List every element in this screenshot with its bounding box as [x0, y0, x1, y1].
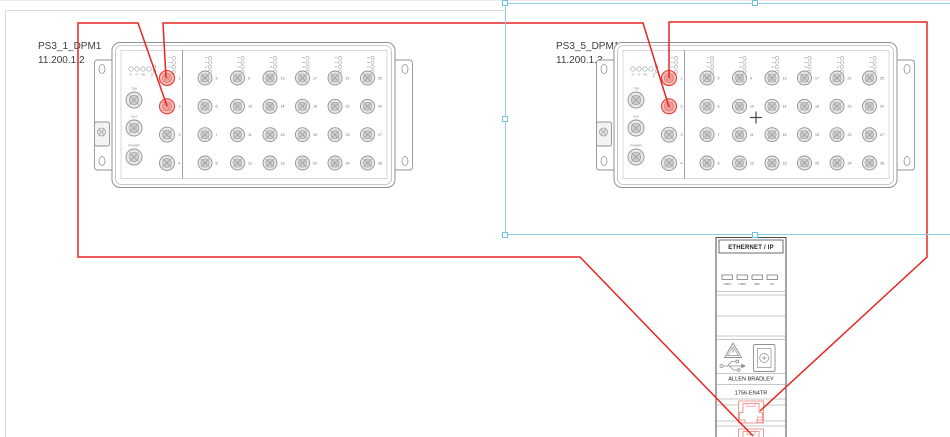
port-number-label: 10	[750, 105, 754, 109]
port-number-label: 8	[216, 161, 218, 165]
ring-port-4[interactable]	[662, 155, 677, 170]
plc-port-B[interactable]	[739, 429, 764, 437]
port-number-label: 21	[346, 76, 350, 80]
io-port-25[interactable]	[863, 71, 877, 85]
plc-module-1756-en4tr[interactable]: ETHERNET / IPLINK1LINK2NETOKALLEN BRADLE…	[715, 237, 787, 437]
io-port-20[interactable]	[798, 156, 812, 170]
port-number-label: 26	[880, 105, 884, 109]
port-number-label: 15	[281, 133, 285, 137]
io-port-15[interactable]	[765, 128, 779, 142]
port-number-label: 11	[750, 133, 754, 137]
io-port-15[interactable]	[263, 128, 277, 142]
port-number-label: 5	[718, 76, 720, 80]
port-number-label: 15	[783, 133, 787, 137]
port-number-label: 16	[281, 161, 285, 165]
connector-label: TJM	[633, 87, 639, 91]
plc-brand-label: ALLEN BRADLEY	[728, 377, 774, 383]
plc-led-label: OK	[770, 282, 774, 286]
device-housing	[112, 43, 395, 188]
io-port-28[interactable]	[863, 156, 877, 170]
port-number-label: 12	[750, 161, 754, 165]
port-number-label: 2	[179, 105, 181, 109]
selection-handle-top-middle[interactable]	[752, 0, 758, 6]
io-port-18[interactable]	[798, 99, 812, 113]
ring-port-2[interactable]	[160, 99, 175, 114]
io-port-14[interactable]	[263, 99, 277, 113]
port-number-label: 17	[313, 76, 317, 80]
port-number-label: 24	[848, 161, 852, 165]
port-number-label: 2	[681, 105, 683, 109]
din-clip	[95, 122, 110, 146]
io-port-27[interactable]	[863, 128, 877, 142]
ring-port-3[interactable]	[160, 127, 175, 142]
port-number-label: 22	[346, 105, 350, 109]
port-number-label: 4	[179, 161, 181, 165]
connector-label: POWER	[630, 144, 642, 148]
io-port-5[interactable]	[700, 71, 714, 85]
io-port-24[interactable]	[328, 156, 342, 170]
port-number-label: 23	[848, 133, 852, 137]
port-number-label: 8	[718, 161, 720, 165]
status-led-label: TX2	[653, 72, 656, 77]
io-port-12[interactable]	[231, 156, 245, 170]
io-port-9[interactable]	[231, 71, 245, 85]
port-number-label: 4	[681, 161, 683, 165]
io-port-21[interactable]	[830, 71, 844, 85]
device-label-block-1: PS3_1_DPM1 11.200.1.2	[38, 40, 101, 67]
plc-model-label: 1756-EN4TR	[735, 391, 768, 397]
io-port-11[interactable]	[231, 128, 245, 142]
device-housing	[614, 43, 897, 188]
port-number-label: 10	[248, 105, 252, 109]
selection-handle-top-left[interactable]	[502, 0, 508, 6]
io-port-26[interactable]	[863, 99, 877, 113]
connector-label: ACA	[633, 115, 639, 119]
port-number-label: 27	[880, 133, 884, 137]
service-connector-aca[interactable]	[628, 120, 644, 136]
port-number-label: 9	[248, 76, 250, 80]
port-number-label: 20	[815, 161, 819, 165]
port-number-label: 18	[313, 105, 317, 109]
ring-port-1[interactable]	[662, 71, 677, 86]
io-port-7[interactable]	[700, 128, 714, 142]
io-port-27[interactable]	[361, 128, 375, 142]
port-number-label: 3	[179, 133, 181, 137]
io-port-10[interactable]	[733, 99, 747, 113]
io-port-22[interactable]	[328, 99, 342, 113]
ring-port-1[interactable]	[160, 71, 175, 86]
status-led-label: TX2	[151, 72, 154, 77]
din-clip	[597, 122, 612, 146]
io-port-11[interactable]	[733, 128, 747, 142]
port-number-label: 14	[783, 105, 787, 109]
io-port-13[interactable]	[263, 71, 277, 85]
port-number-label: 6	[216, 105, 218, 109]
port-number-label: 26	[378, 105, 382, 109]
io-port-8[interactable]	[700, 156, 714, 170]
port-number-label: 19	[313, 133, 317, 137]
ring-port-3[interactable]	[662, 127, 677, 142]
port-number-label: 5	[216, 76, 218, 80]
plc-led-label: LINK1	[723, 282, 731, 286]
io-port-17[interactable]	[798, 71, 812, 85]
port-number-label: 17	[815, 76, 819, 80]
device-ip: 11.200.1.2	[38, 54, 101, 68]
connector-label: POWER	[128, 144, 140, 148]
io-port-10[interactable]	[231, 99, 245, 113]
io-port-9[interactable]	[733, 71, 747, 85]
port-number-label: 25	[378, 76, 382, 80]
io-port-14[interactable]	[765, 99, 779, 113]
port-number-label: 20	[313, 161, 317, 165]
service-connector-tjm[interactable]	[126, 92, 142, 108]
diagram-canvas: PS3_1_DPM1 11.200.1.2 PS3_5_DPM1 11.200.…	[0, 0, 950, 437]
port-number-label: 7	[718, 133, 720, 137]
io-port-19[interactable]	[296, 128, 310, 142]
io-port-12[interactable]	[733, 156, 747, 170]
io-port-22[interactable]	[830, 99, 844, 113]
selection-handle-bottom-middle[interactable]	[752, 232, 758, 238]
port-number-label: 1	[681, 76, 683, 80]
io-port-16[interactable]	[263, 156, 277, 170]
io-port-23[interactable]	[328, 128, 342, 142]
service-connector-power[interactable]	[126, 149, 142, 165]
io-port-16[interactable]	[765, 156, 779, 170]
port-number-label: 24	[346, 161, 350, 165]
io-port-5[interactable]	[198, 71, 212, 85]
port-number-label: 14	[281, 105, 285, 109]
port-number-label: 25	[880, 76, 884, 80]
io-port-23[interactable]	[830, 128, 844, 142]
io-port-24[interactable]	[830, 156, 844, 170]
port-number-label: 13	[281, 76, 285, 80]
port-number-label: 22	[848, 105, 852, 109]
port-number-label: 21	[848, 76, 852, 80]
service-connector-tjm[interactable]	[628, 92, 644, 108]
port-number-label: 27	[378, 133, 382, 137]
io-port-6[interactable]	[198, 99, 212, 113]
io-port-26[interactable]	[361, 99, 375, 113]
port-number-label: 9	[750, 76, 752, 80]
service-connector-aca[interactable]	[126, 120, 142, 136]
plc-header-label: ETHERNET / IP	[728, 245, 774, 251]
status-led-label: RM	[643, 74, 647, 77]
port-number-label: 28	[880, 161, 884, 165]
io-port-28[interactable]	[361, 156, 375, 170]
port-number-label: 6	[718, 105, 720, 109]
io-port-18[interactable]	[296, 99, 310, 113]
selection-handle-left-middle[interactable]	[502, 116, 508, 122]
status-led-label: RM	[141, 74, 145, 77]
connector-label: TJM	[131, 87, 137, 91]
port-number-label: 16	[783, 161, 787, 165]
io-port-21[interactable]	[328, 71, 342, 85]
port-number-label: 23	[346, 133, 350, 137]
port-number-label: 19	[815, 133, 819, 137]
io-port-7[interactable]	[198, 128, 212, 142]
port-number-label: 7	[216, 133, 218, 137]
io-port-25[interactable]	[361, 71, 375, 85]
ring-port-2[interactable]	[662, 99, 677, 114]
port-number-label: 3	[681, 133, 683, 137]
port-number-label: 18	[815, 105, 819, 109]
port-number-label: 12	[248, 161, 252, 165]
plc-led-label: NET	[755, 282, 761, 286]
port-number-label: 28	[378, 161, 382, 165]
io-port-13[interactable]	[765, 71, 779, 85]
device-ps3-1-dpm1[interactable]: F1F2RMTX2TJMACAPOWER12345678910111213141…	[94, 42, 413, 188]
io-port-6[interactable]	[700, 99, 714, 113]
io-port-8[interactable]	[198, 156, 212, 170]
io-port-17[interactable]	[296, 71, 310, 85]
connector-label: ACA	[131, 115, 137, 119]
io-port-20[interactable]	[296, 156, 310, 170]
plc-led-label: LINK2	[738, 282, 746, 286]
plc-port-A[interactable]	[739, 401, 764, 423]
selection-handle-bottom-left[interactable]	[502, 232, 508, 238]
port-number-label: 13	[783, 76, 787, 80]
device-ps3-5-dpm1[interactable]: F1F2RMTX2TJMACAPOWER12345678910111213141…	[596, 42, 915, 188]
ring-port-4[interactable]	[160, 155, 175, 170]
port-number-label: 11	[248, 133, 252, 137]
device-name: PS3_1_DPM1	[38, 40, 101, 54]
service-connector-power[interactable]	[628, 149, 644, 165]
io-port-19[interactable]	[798, 128, 812, 142]
port-number-label: 1	[179, 76, 181, 80]
